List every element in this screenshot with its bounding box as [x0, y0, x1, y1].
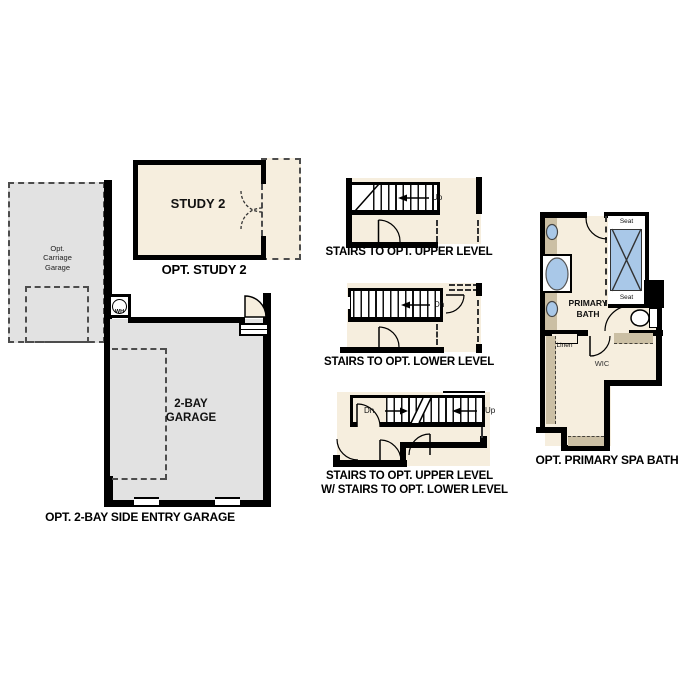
stairs-combo-caption-line1: STAIRS TO OPT. UPPER LEVEL: [322, 470, 497, 482]
stairs-lower-direction-label: Dn: [434, 301, 444, 309]
stairs-combo-caption-line2: W/ STAIRS TO OPT. LOWER LEVEL: [317, 484, 512, 496]
linework-overlay: [0, 0, 687, 687]
stairs-lower-caption: STAIRS TO OPT. LOWER LEVEL: [324, 356, 494, 368]
stairs-upper-cut-line: [355, 184, 379, 211]
stairs-upper-arrowhead: [398, 195, 407, 202]
stairs-upper-door-arc: [379, 220, 401, 242]
study-room-label: STUDY 2: [148, 196, 248, 212]
stairs-combo-mid-door-arc: [380, 440, 401, 461]
floorplan-canvas: WH: [0, 0, 687, 687]
tub-basin: [546, 258, 568, 290]
bath-caption: OPT. PRIMARY SPA BATH: [521, 453, 687, 467]
bath-entry-door-arc: [586, 218, 607, 239]
stairs-lower-bottom-door-arc: [379, 327, 399, 347]
stairs-combo-dn-arrowhead: [400, 408, 408, 415]
stairs-combo-right-door-arc: [409, 434, 430, 455]
stairs-combo-up-label: Up: [485, 407, 495, 415]
garage-room-label: 2-BAY GARAGE: [141, 397, 241, 426]
entry-door: [245, 296, 266, 317]
stairs-lower-arrowhead: [401, 302, 410, 309]
garage-caption: OPT. 2-BAY SIDE ENTRY GARAGE: [8, 510, 272, 524]
study-caption: OPT. STUDY 2: [128, 262, 280, 277]
wic-door-arc: [590, 336, 610, 356]
bath-room-label: PRIMARY BATH: [556, 298, 620, 319]
stairs-combo-up-arrowhead: [452, 408, 461, 415]
stairs-combo-dn-label: Dn: [364, 407, 374, 415]
carriage-garage-label: Opt. Carriage Garage: [20, 244, 95, 272]
stairs-upper-caption: STAIRS TO OPT. UPPER LEVEL: [324, 246, 494, 258]
stairs-upper-direction-label: Up: [432, 194, 442, 202]
stairs-lower-right-door-arc: [446, 295, 464, 313]
toilet-bowl: [631, 310, 649, 326]
sink-top: [547, 225, 558, 240]
wic-label: WIC: [588, 359, 616, 368]
stairs-combo-bl-door-arc: [337, 439, 358, 460]
